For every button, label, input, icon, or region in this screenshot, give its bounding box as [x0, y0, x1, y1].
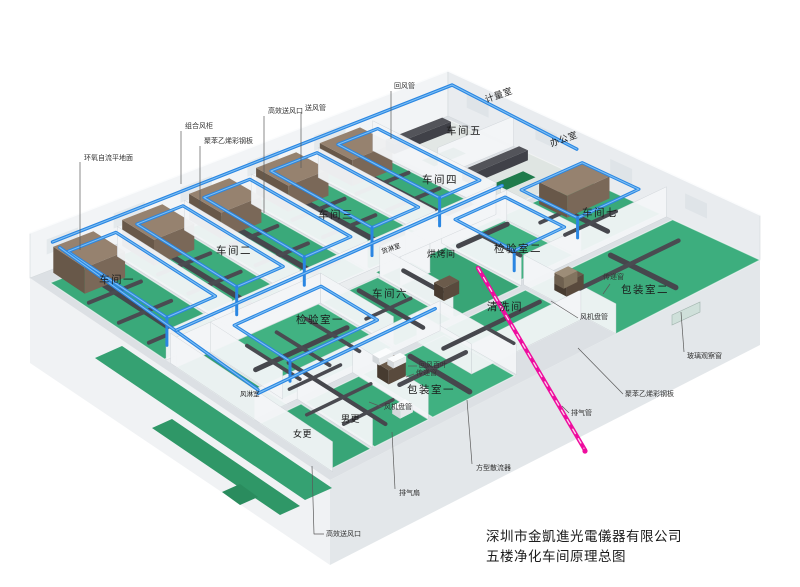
room-label-air-shower: 风淋室	[240, 392, 260, 399]
room-label-inspection-2: 检验室二	[494, 244, 542, 255]
room-label-workshop-2: 车间二	[216, 246, 252, 257]
callout-return-louver: 回风百叶	[419, 362, 447, 369]
room-label-workshop-7: 车间七	[582, 208, 618, 219]
callout-hepa-outlet-top: 高效送风口	[268, 108, 303, 115]
room-label-cleaning: 清洗间	[487, 302, 523, 313]
callout-return-duct: 回风管	[394, 83, 415, 90]
callout-epoxy-floor: 环氧自流平地面	[84, 155, 133, 162]
drawing-title: 五楼净化车间原理总图	[486, 547, 682, 567]
room-label-workshop-6: 车间六	[372, 289, 408, 300]
callout-glass-window: 玻璃观察窗	[687, 353, 722, 360]
callout-supply-duct: 送风管	[305, 105, 326, 112]
callout-steel-panel-right: 聚苯乙烯彩钢板	[625, 391, 674, 398]
room-label-packing-1: 包装室一	[407, 385, 455, 396]
exhaust-duct-end	[582, 448, 587, 453]
title-block: 深圳市金凱進光電儀器有限公司 五楼净化车间原理总图	[486, 527, 682, 568]
callout-square-diffuser: 方型散流器	[476, 465, 511, 472]
room-label-inspection-1: 检验室一	[296, 315, 344, 326]
room-label-workshop-1: 车间一	[99, 275, 135, 286]
callout-combined-ahu: 组合风柜	[185, 123, 213, 130]
company-name: 深圳市金凱進光電儀器有限公司	[486, 527, 682, 547]
callout-hepa-outlet-bottom: 高效送风口	[326, 531, 361, 538]
callout-pass-window-right: 传递窗	[603, 274, 624, 281]
room-label-workshop-3: 车间三	[318, 210, 354, 221]
callout-fan-coil-right: 风机盘管	[580, 314, 608, 321]
room-label-women-changing: 女更	[293, 430, 312, 439]
room-label-baking: 烘烤间	[427, 250, 456, 259]
callout-fan-coil-bottom: 风机盘管	[384, 404, 412, 411]
room-label-workshop-5: 车间五	[446, 126, 482, 137]
cleanroom-isometric-diagram: 车间一 车间二 车间三 车间四 车间五 车间六 车间七 计量室 办公室 货淋室 …	[0, 0, 800, 587]
room-label-workshop-4: 车间四	[422, 175, 458, 186]
room-label-packing-2: 包装室二	[621, 285, 669, 296]
room-label-men-changing: 男更	[341, 415, 360, 424]
callout-steel-panel-top: 聚苯乙烯彩钢板	[204, 138, 253, 145]
callout-exhaust-fan: 排气扇	[399, 490, 420, 497]
callout-exhaust-pipe: 排气管	[571, 410, 592, 417]
callout-pass-window-bottom: 传递窗	[416, 370, 437, 377]
